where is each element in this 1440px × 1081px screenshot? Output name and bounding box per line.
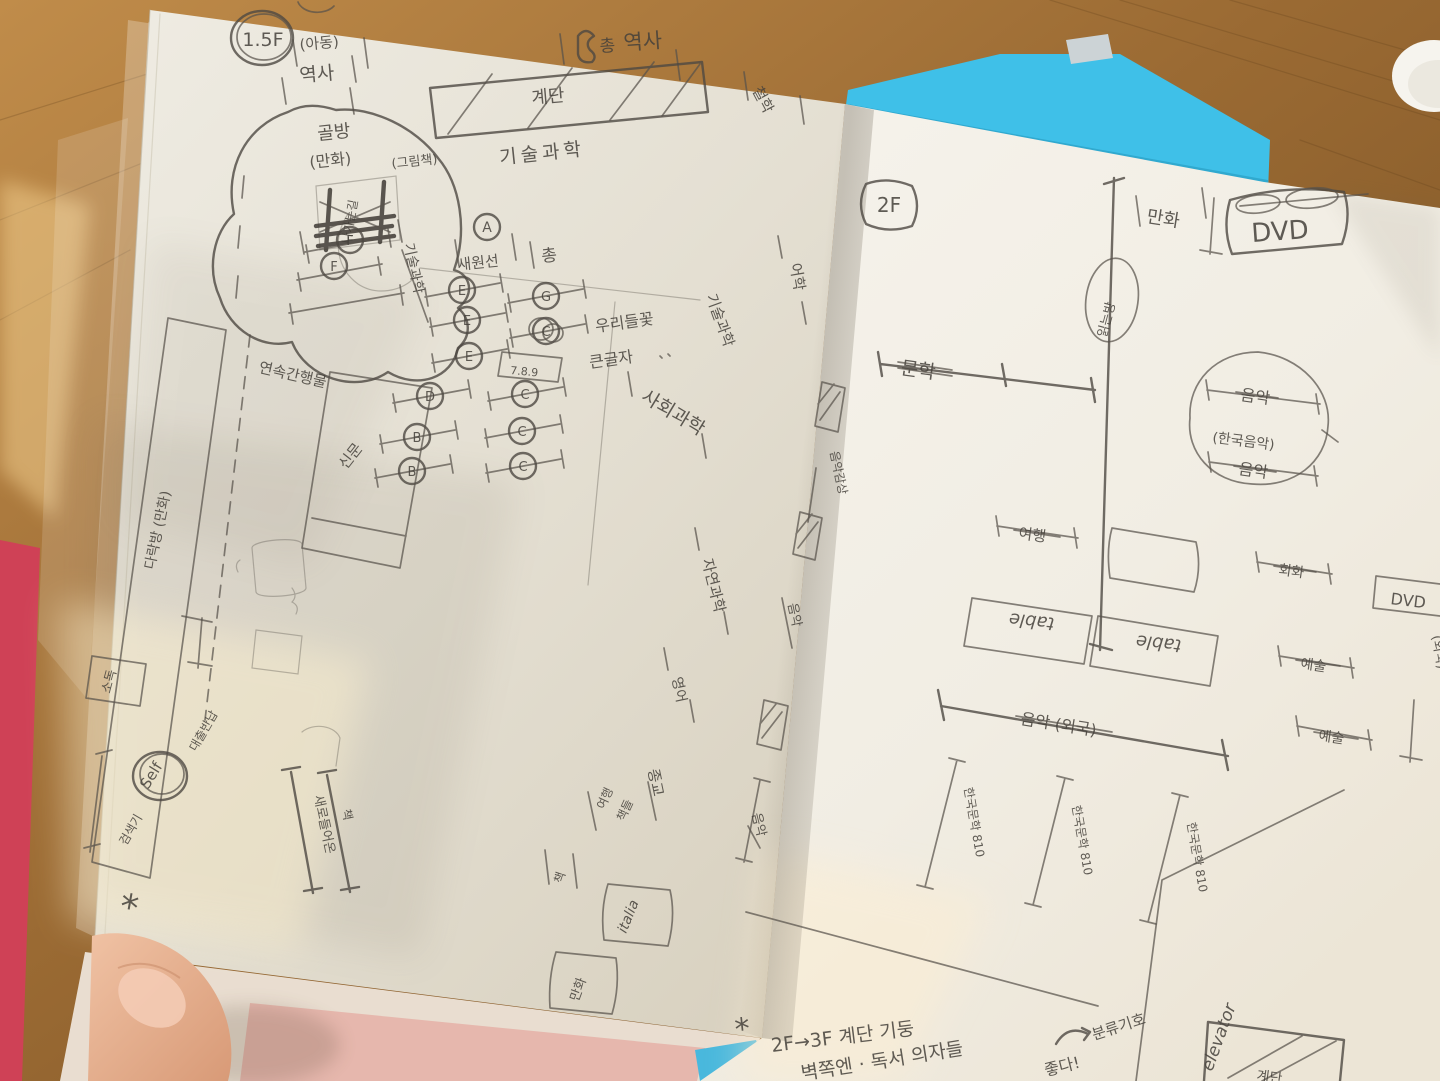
svg-text:E: E <box>458 284 466 299</box>
section-a-mark: A <box>482 220 492 236</box>
kids-label: (아동) <box>299 33 340 54</box>
shelf-note: 7.8.9 <box>510 364 539 379</box>
svg-text:C: C <box>520 388 529 403</box>
svg-text:F: F <box>346 234 353 249</box>
svg-text:C: C <box>541 325 550 340</box>
nook-label: 골방 <box>316 121 351 145</box>
svg-text:E: E <box>463 314 471 329</box>
hall-history-label: 역사 <box>623 28 663 55</box>
stairs-label: 계단 <box>531 85 566 109</box>
svg-text:C: C <box>517 425 526 440</box>
kids-history-label: 역사 <box>299 62 336 87</box>
svg-text:E: E <box>465 350 473 365</box>
hall-prefix: 총 <box>599 36 616 57</box>
svg-text:F: F <box>330 260 337 275</box>
photo-of-notebook: 1.5F (아동) 역사 총 역사 철학 계단 기술과학 골방 (만화) (그림… <box>0 0 1440 1081</box>
scene: 1.5F (아동) 역사 총 역사 철학 계단 기술과학 골방 (만화) (그림… <box>0 0 1440 1081</box>
floor-label: 1.5F <box>242 29 283 51</box>
svg-text:C: C <box>518 460 527 475</box>
dvd-label: DVD <box>1250 215 1309 249</box>
floor-label: 2F <box>877 193 901 217</box>
section-a-side: 총 <box>540 245 558 267</box>
svg-text:G: G <box>541 290 551 305</box>
svg-text:B: B <box>408 465 417 480</box>
svg-text:B: B <box>413 431 422 446</box>
left-page <box>60 10 845 1038</box>
